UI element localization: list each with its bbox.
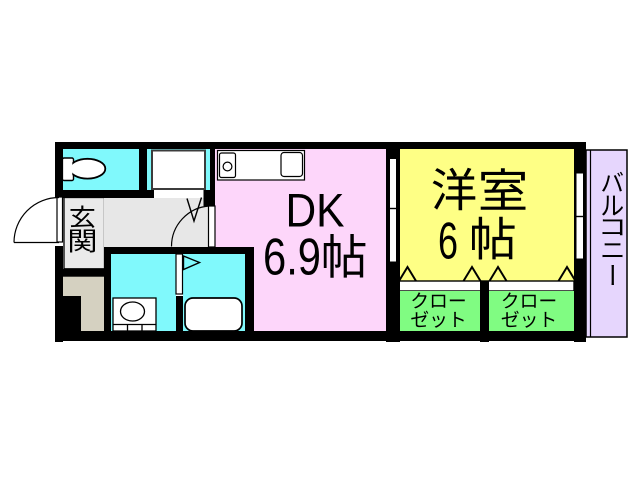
svg-text:6.9: 6.9	[263, 229, 321, 287]
svg-text:6: 6	[438, 212, 458, 270]
